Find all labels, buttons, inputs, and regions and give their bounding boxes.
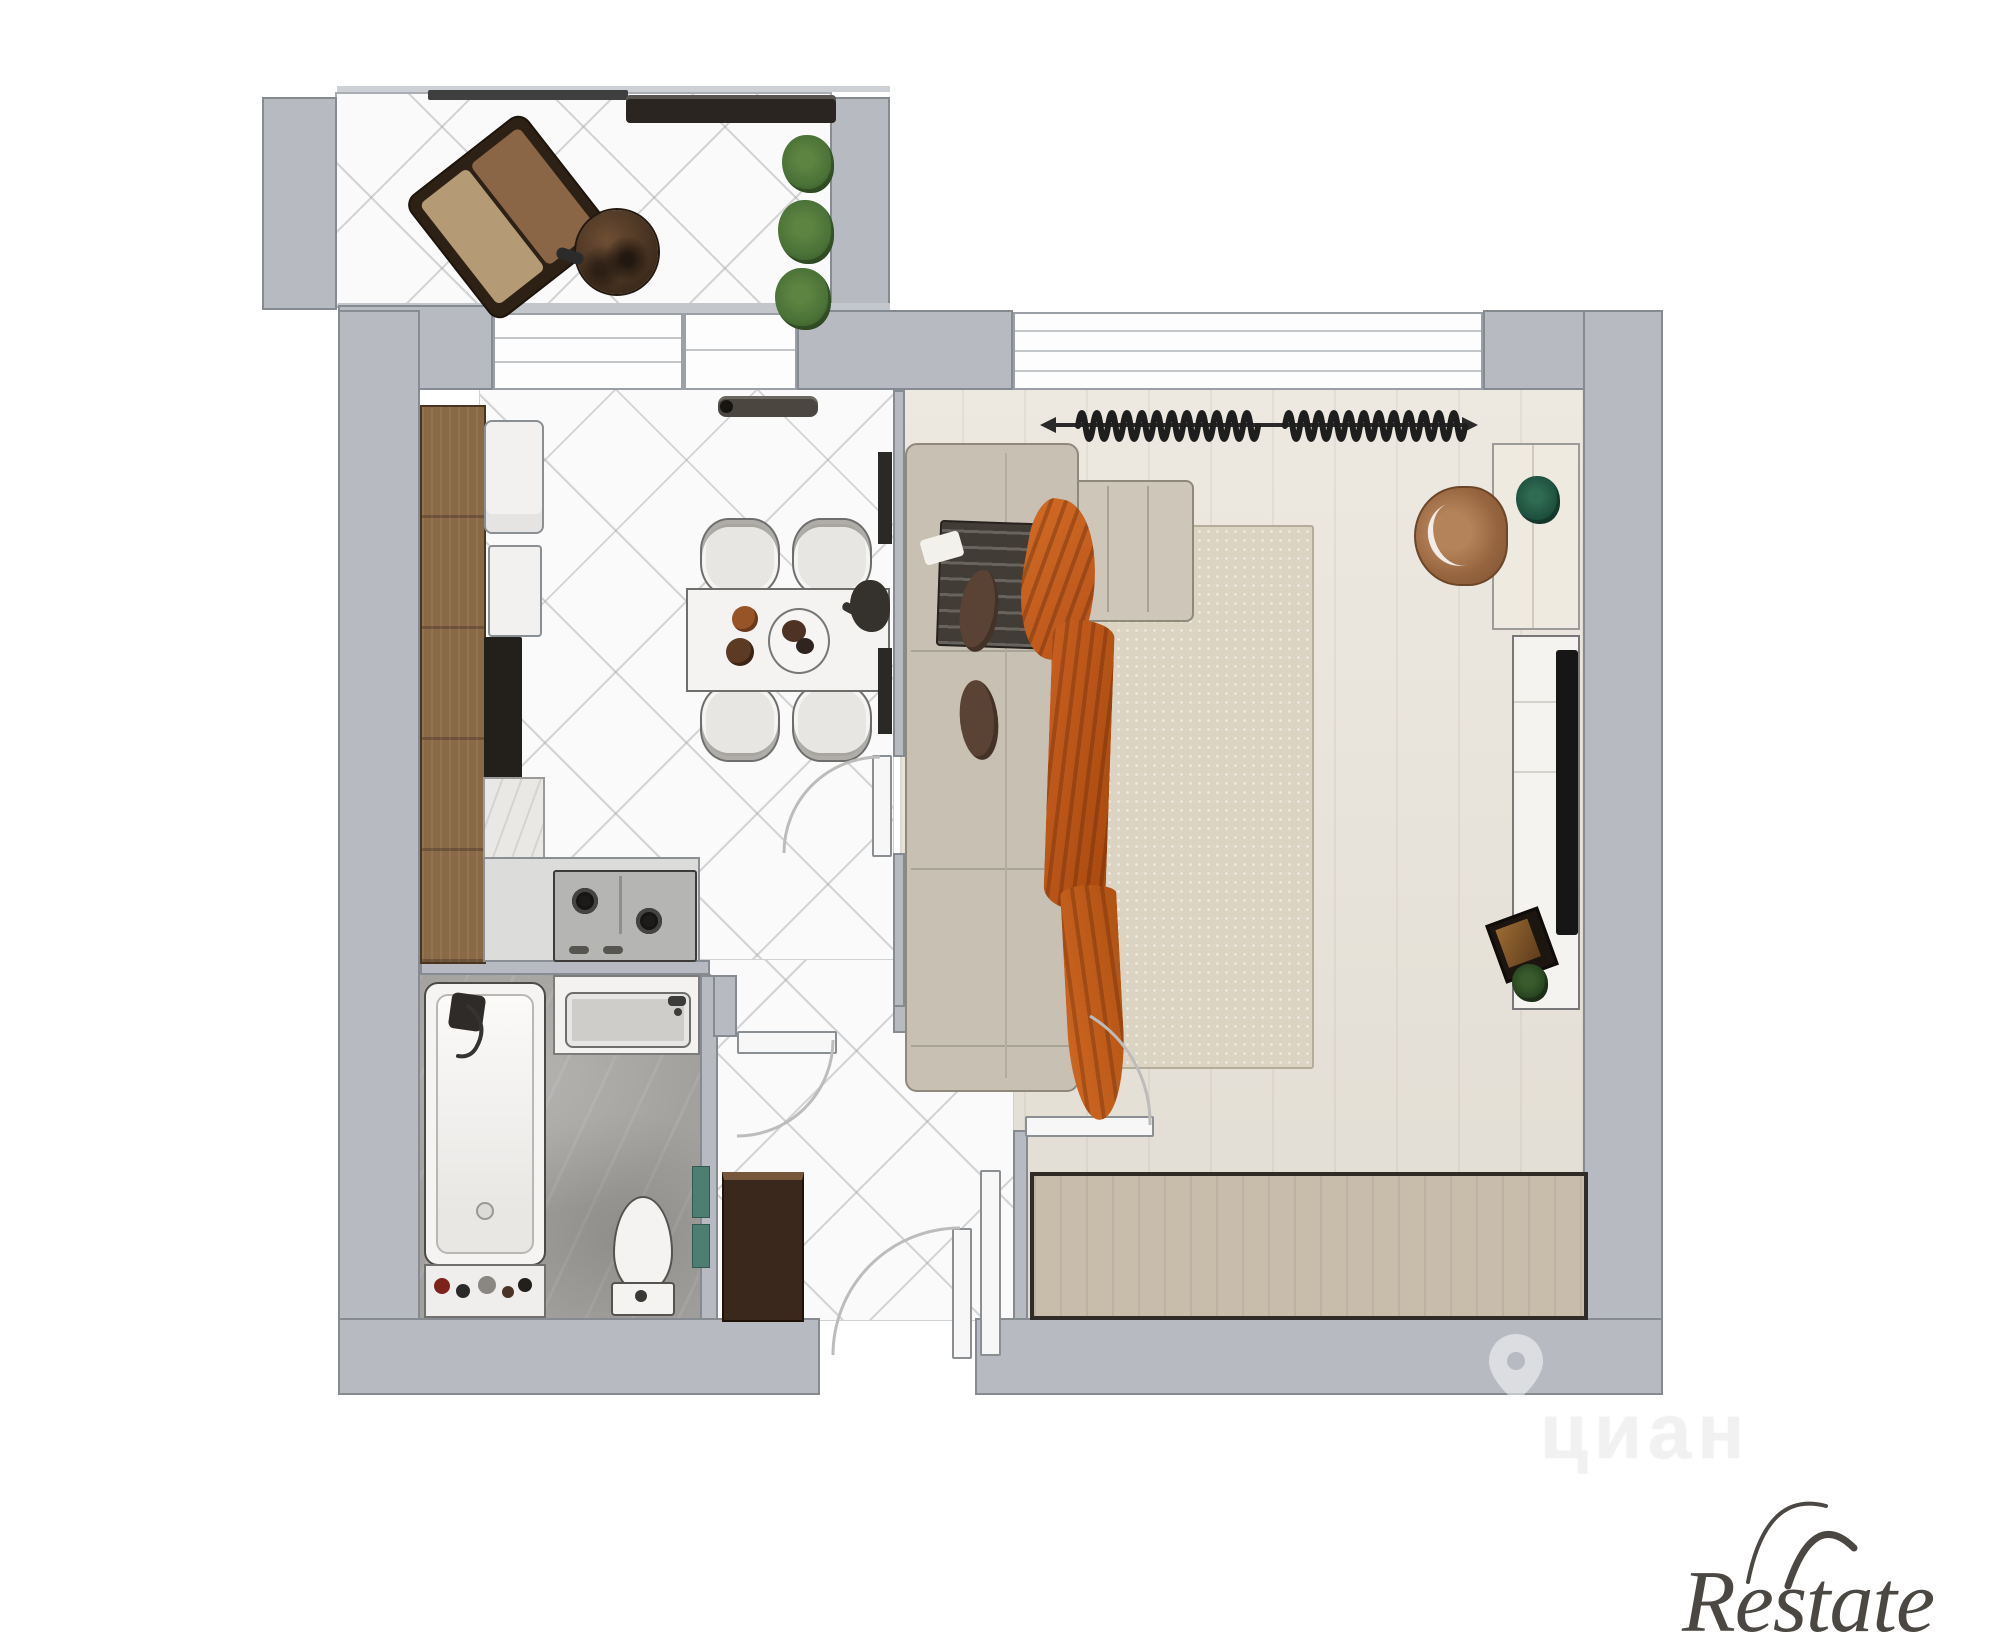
dining-living-wall-lower [893, 853, 905, 1008]
towel-2 [692, 1224, 710, 1268]
kitchen-window [493, 313, 683, 390]
cooktop-burner-left [572, 888, 598, 914]
balcony-plant-3 [775, 268, 831, 330]
dining-living-wall-upper [893, 390, 905, 757]
bathtub [424, 982, 546, 1266]
shower-head [448, 992, 487, 1032]
living-room-window [1013, 312, 1483, 390]
hall-door-stub-wall [713, 975, 737, 1037]
balcony-door [683, 313, 797, 390]
tv [1556, 650, 1578, 935]
desk-chair [1414, 486, 1508, 586]
portal-watermark-text: циан [1540, 1386, 1750, 1477]
dining-chair-3 [700, 684, 780, 762]
kitchen-tall-cabinet [420, 405, 486, 964]
living-room-door-leaf [1025, 1116, 1154, 1137]
balcony-left-wall [262, 97, 337, 310]
kitchen-livingroom-top-wall [797, 310, 1013, 390]
orange-throw-mid [1043, 619, 1115, 911]
left-exterior-wall [338, 310, 420, 1395]
serving-plate [768, 608, 830, 674]
balcony-glazing-bar-thin [428, 90, 628, 100]
desk-plant [1516, 476, 1560, 524]
dining-wall-shelf-lower [878, 648, 892, 734]
brand-logo-text: Restate [1682, 1552, 1934, 1652]
bathroom-door-leaf [737, 1031, 837, 1054]
tv-stand-plant [1512, 964, 1548, 1002]
bowl-amber [732, 606, 758, 632]
kitchen-door-leaf [872, 755, 892, 857]
kitchen-appliance [488, 545, 542, 637]
sink-faucet [668, 996, 686, 1006]
kitchen-black-unit [484, 637, 522, 779]
kitchen-counter-marble [483, 777, 545, 859]
bottom-left-exterior-wall [338, 1318, 820, 1395]
floorplan-canvas: циан Restate [0, 0, 2000, 1652]
cooktop-burner-right [636, 908, 662, 934]
kitchen-radiator [718, 396, 818, 417]
bowl-dark [726, 638, 754, 666]
bathroom-shelf [424, 1264, 546, 1318]
right-exterior-wall [1583, 310, 1663, 1395]
tub-drain [476, 1202, 494, 1220]
balcony-side-table [576, 210, 658, 294]
dining-table [686, 588, 890, 692]
balcony-plant-2 [778, 200, 834, 264]
kitchen-fridge [484, 420, 544, 534]
dining-wall-shelf-upper [878, 452, 892, 544]
bottom-right-exterior-wall [975, 1318, 1663, 1395]
vanity-counter [553, 975, 700, 1055]
dining-chair-4 [792, 684, 872, 762]
dining-chair-1 [700, 518, 780, 596]
hall-living-wall [1013, 1130, 1028, 1320]
hall-door-trim [980, 1170, 1001, 1356]
kitchen-cooktop [553, 870, 697, 962]
toilet-flush-button [635, 1290, 647, 1302]
toilet [611, 1196, 671, 1314]
balcony-right-wall [830, 97, 890, 310]
hall-wardrobe [722, 1172, 804, 1322]
balcony-glazing-bar-thick [626, 95, 836, 123]
sideboard [1030, 1172, 1588, 1320]
entry-door-leaf [952, 1228, 972, 1359]
towel-1 [692, 1166, 710, 1218]
balcony-plant-1 [782, 135, 834, 193]
